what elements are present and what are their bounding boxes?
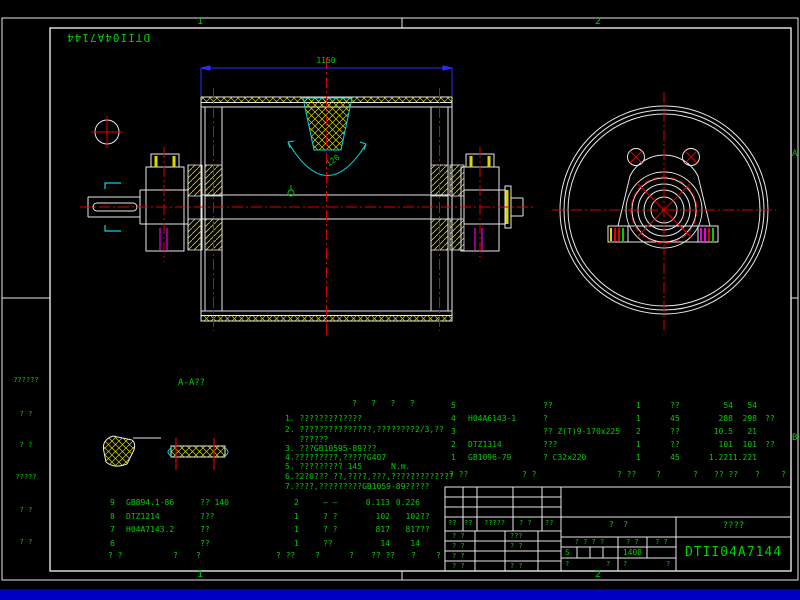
part-total-weight: 21	[727, 428, 757, 436]
part-qty: 2	[294, 499, 299, 507]
part-material: ? ?	[323, 513, 337, 521]
part-remark: ??	[420, 526, 430, 534]
tb-sign-cell: ??	[545, 520, 553, 527]
part-material: ??	[670, 402, 680, 410]
zone-label-bottom-2: 2	[595, 570, 601, 580]
part-unit-weight: 14	[362, 540, 390, 548]
centerlines-end	[552, 92, 776, 330]
part-name: ???	[543, 441, 557, 449]
parts-header: ?	[693, 471, 698, 479]
part-total-weight: 817	[392, 526, 420, 534]
part-remark: ??	[765, 415, 775, 423]
part-qty: 1	[636, 454, 641, 462]
detail-circle	[91, 116, 123, 148]
front-view-drum	[80, 58, 536, 336]
parts-header: ?	[755, 471, 760, 479]
part-code: GB1096-79	[468, 454, 511, 462]
zone-label-bottom-1: 1	[197, 570, 203, 580]
tb-left-cell: ? ?	[452, 563, 465, 570]
part-seq: 8	[110, 513, 115, 521]
parts-header: ? ??	[276, 552, 295, 560]
part-seq: 2	[451, 441, 456, 449]
part-total-weight: 101	[727, 441, 757, 449]
tb-left-cell: ? ?	[510, 543, 523, 550]
parts-header: ?? ??	[714, 471, 738, 479]
margin-item: ? ?	[6, 507, 46, 514]
part-seq: 4	[451, 415, 456, 423]
part-seq: 5	[451, 402, 456, 410]
surface-finish-symbol	[288, 185, 294, 196]
tb-stage: ? ?	[561, 521, 676, 529]
part-name: ?	[543, 415, 548, 423]
tb-sign-cell: ? ?	[519, 520, 532, 527]
part-code: DTZ1314	[468, 441, 502, 449]
note-line: 5. ????????? 145 N.m.	[285, 463, 410, 471]
tb-approval-cell: ? ?	[647, 539, 676, 546]
tb-left-cell: ? ?	[452, 543, 465, 550]
part-qty: 1	[294, 540, 299, 548]
part-material: ??	[323, 540, 333, 548]
parts-header: ?? ??	[371, 552, 395, 560]
doc-number-mirrored: DTII04A7144	[58, 32, 158, 43]
section-label: A-A??	[178, 379, 205, 388]
part-code: H04A6143-1	[468, 415, 516, 423]
tb-left-cell: ???	[510, 533, 523, 540]
drawing-geometry	[0, 0, 800, 600]
tb-drawing-number: DTII04A7144	[676, 546, 791, 559]
part-material: ??	[670, 441, 680, 449]
notes-heading: ? ? ? ?	[352, 400, 415, 408]
tb-sheet-number: 1408	[618, 549, 647, 557]
parts-header: ?	[173, 552, 178, 560]
zone-label-top-1: 1	[197, 17, 203, 27]
tb-left-cell: ? ?	[510, 563, 523, 570]
part-unit-weight: 817	[362, 526, 390, 534]
zone-label-A: A	[792, 150, 797, 159]
parts-header: ?	[656, 471, 661, 479]
parts-header: ? ??	[449, 471, 468, 479]
note-line: 3. ???GB10595-89???	[285, 445, 377, 453]
parts-header: ?	[781, 471, 786, 479]
part-material: — —	[323, 499, 337, 507]
margin-item: ? ?	[6, 539, 46, 546]
tb-bottom-cell: ?	[606, 561, 610, 568]
parts-header: ?	[436, 552, 441, 560]
tb-bottom-cell: ?	[565, 561, 569, 568]
parts-header: ? ??	[617, 471, 636, 479]
part-total-weight: 54	[727, 402, 757, 410]
parts-header: ? ?	[108, 552, 122, 560]
part-total-weight: 1.221	[727, 454, 757, 462]
part-seq: 3	[451, 428, 456, 436]
part-name: ? C32x220	[543, 454, 586, 462]
part-name: ?? 140	[200, 499, 229, 507]
margin-item: ? ?	[6, 411, 46, 418]
part-total-weight: 298	[727, 415, 757, 423]
part-unit-weight: 102	[362, 513, 390, 521]
part-name: ??	[543, 402, 553, 410]
end-view	[552, 92, 776, 330]
part-name: ??	[200, 526, 210, 534]
part-material: 45	[670, 454, 680, 462]
part-total-weight: 102	[392, 513, 420, 521]
part-material: 45	[670, 415, 680, 423]
part-qty: 1	[636, 441, 641, 449]
part-code: H04A7143.2	[126, 526, 174, 534]
part-code: DTZ1214	[126, 513, 160, 521]
section-details	[103, 436, 228, 470]
part-remark: ??	[420, 513, 430, 521]
parts-header: ?	[411, 552, 416, 560]
tb-sign-cell: ??	[448, 520, 456, 527]
tb-left-cell: ? ?	[452, 553, 465, 560]
tb-approval-cell: ? ? ? ?	[561, 539, 618, 546]
parts-header: ?	[315, 552, 320, 560]
tb-approval-cell: ? ?	[618, 539, 647, 546]
zone-label-top-2: 2	[595, 17, 601, 27]
part-seq: 6	[110, 540, 115, 548]
tb-sheet-s: S	[565, 549, 570, 557]
part-qty: 1	[636, 415, 641, 423]
tb-left-cell: ? ?	[452, 533, 465, 540]
note-line: 7.????,?????????GB1059-89?????	[285, 483, 430, 491]
part-total-weight: 0.226	[392, 499, 420, 507]
part-qty: 1	[294, 513, 299, 521]
part-material: ? ?	[323, 526, 337, 534]
note-line: 6.?2?0??? ??,????,???,?????????????	[285, 473, 454, 481]
part-qty: 1	[294, 526, 299, 534]
part-name: ??	[200, 540, 210, 548]
note-line: 2. ???????????????,????????2/3,??	[285, 426, 444, 434]
tb-sign-cell: ??	[464, 520, 472, 527]
margin-item: ?????	[6, 474, 46, 481]
part-seq: 1	[451, 454, 456, 462]
bearing-left	[146, 154, 184, 251]
zone-label-B: B	[792, 434, 797, 443]
part-code: GB894.1-86	[126, 499, 174, 507]
parts-header: ? ?	[522, 471, 536, 479]
part-seq: 9	[110, 499, 115, 507]
part-qty: 2	[636, 428, 641, 436]
tb-bottom-cell: ?	[666, 561, 670, 568]
part-unit-weight: 0.113	[362, 499, 390, 507]
margin-item: ??????	[6, 377, 46, 384]
tb-company: ????	[676, 522, 791, 531]
part-total-weight: 14	[392, 540, 420, 548]
note-line: 1. ?????????????	[285, 415, 362, 423]
parts-header: ?	[349, 552, 354, 560]
note-line: 4.?????????,?????G407	[285, 454, 386, 462]
part-material: ??	[670, 428, 680, 436]
tb-bottom-cell: ?	[623, 561, 627, 568]
part-seq: 7	[110, 526, 115, 534]
cad-sheet: 1 2 1 2 A B DTII04A7144 1150 120 A-A?? ?…	[0, 0, 800, 600]
part-qty: 1	[636, 402, 641, 410]
note-line: ??????	[285, 436, 328, 444]
part-name: ?? Z(T)9-170x225	[543, 428, 620, 436]
tb-sign-cell: ?????	[484, 520, 505, 527]
part-remark: ??	[765, 441, 775, 449]
part-name: ???	[200, 513, 214, 521]
dimension-1150-label: 1150	[276, 57, 376, 65]
margin-item: ? ?	[6, 442, 46, 449]
bottom-blue-strip	[0, 589, 800, 600]
parts-header: ?	[196, 552, 201, 560]
